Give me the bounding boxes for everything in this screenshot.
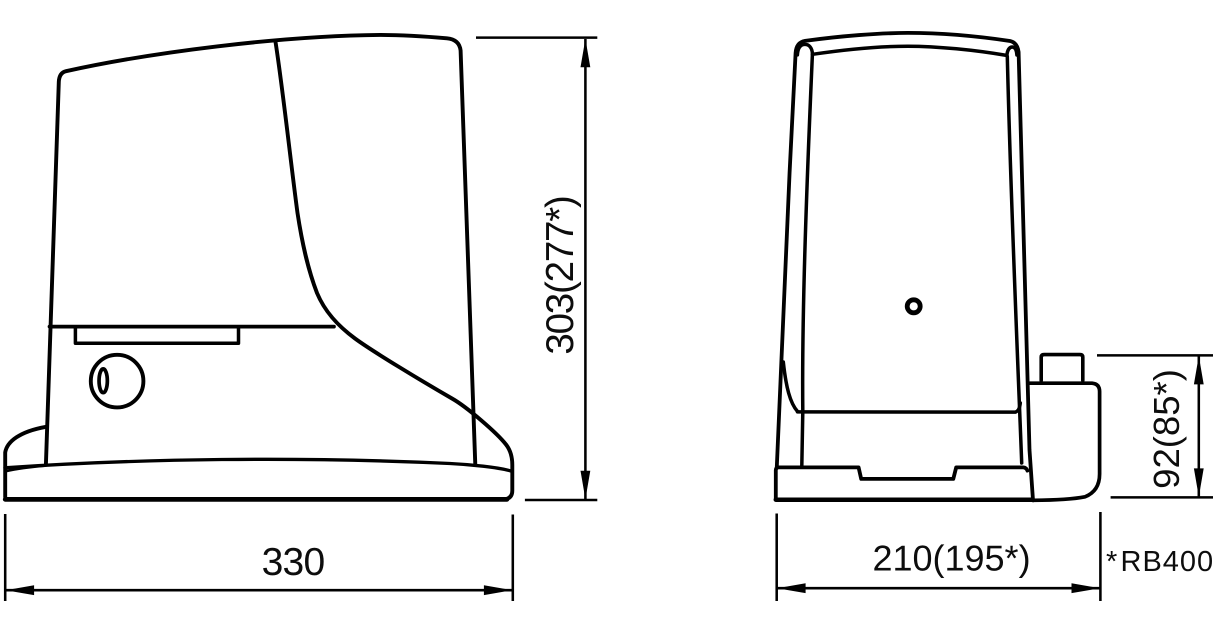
- svg-text:*: *: [1106, 546, 1117, 578]
- svg-text:92(85*): 92(85*): [1146, 369, 1187, 489]
- svg-text:RB400: RB400: [1120, 546, 1214, 578]
- svg-text:210(195*): 210(195*): [872, 537, 1030, 578]
- svg-text:330: 330: [262, 541, 325, 584]
- svg-text:303(277*): 303(277*): [539, 196, 582, 354]
